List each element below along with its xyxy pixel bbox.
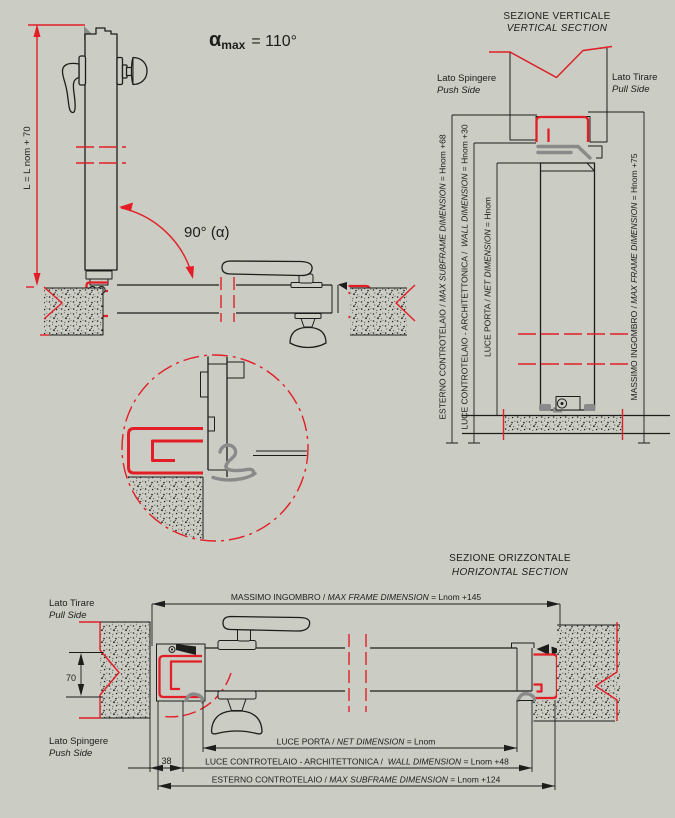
pull-side-label-en: Pull Side [612, 84, 650, 95]
vertical-section-title: SEZIONE VERTICALE [503, 11, 610, 22]
lever-handle-pull-side [62, 56, 85, 113]
opening-angle: 90° (α) [119, 203, 230, 280]
lever-handle-plan [222, 261, 322, 288]
dim-net-opening-v: LUCE PORTA / NET DIMENSION = Hnom [483, 197, 493, 357]
horizontal-section-title: SEZIONE ORIZZONTALE [449, 553, 571, 564]
wall-thickness-dimension: 70 [66, 653, 103, 698]
horizontal-section-view: SEZIONE ORIZZONTALE HORIZONTAL SECTION L… [49, 553, 620, 790]
head-gasket [538, 146, 602, 158]
pull-side-label-en: Pull Side [49, 610, 87, 621]
technical-drawing-page: L = L nom + 70 αmax= 110° [0, 0, 675, 818]
wall-hatch-right-h [534, 622, 621, 721]
dim-net-opening-h: LUCE PORTA / NET DIMENSION = Lnom [277, 737, 436, 747]
door-leaf-plan-open [117, 261, 347, 348]
hinge-jamb-h [157, 644, 232, 717]
knob-handle-plan-h [212, 691, 263, 734]
dim-max-frame-h: MASSIMO INGOMBRO / MAX FRAME DIMENSION =… [231, 592, 482, 602]
dim-wall-opening-h: LUCE CONTROTELAIO - ARCHITETTONICA / WAL… [205, 757, 509, 767]
wall-break-notch [489, 47, 612, 78]
alpha-max-label: αmax= 110° [209, 29, 297, 52]
head-subframe-profile [537, 117, 589, 142]
dim-subframe-outer-h: ESTERNO CONTROTELAIO / MAX SUBFRAME DIME… [212, 775, 501, 785]
horizontal-section-subtitle: HORIZONTAL SECTION [452, 567, 569, 578]
wall-hatch-head [489, 47, 612, 143]
floor-section [462, 409, 670, 440]
dim-wall-opening-v: LUCE CONTROTELAIO - ARCHITETTONICA / WAL… [460, 124, 470, 429]
lock-jamb-h [518, 644, 562, 702]
push-side-label: Lato Spingere [49, 736, 108, 747]
knob-handle-plan [290, 314, 326, 348]
height-dim-label: L = L nom + 70 [22, 126, 33, 189]
vertical-section-view: SEZIONE VERTICALE VERTICAL SECTION Lato … [437, 11, 670, 443]
dim-subframe-outer-v: ESTERNO CONTROTELAIO / MAX SUBFRAME DIME… [438, 134, 448, 420]
gasket-detail [213, 474, 255, 480]
max-frame-dimension-h: MASSIMO INGOMBRO / MAX FRAME DIMENSION =… [152, 592, 560, 646]
lever-handle-plan-h [218, 617, 310, 650]
profile-detail-callout [117, 352, 312, 547]
subframe-offset-label: 38 [161, 756, 171, 766]
push-side-label-en: Push Side [437, 85, 480, 96]
pull-side-label: Lato Tirare [612, 72, 657, 83]
subframe-profile-detail [129, 429, 204, 474]
door-leaf-elevation [62, 26, 147, 270]
dim-max-frame-v: MASSIMO INGOMBRO / MAX FRAME DIMENSION =… [629, 153, 639, 400]
angle-label: 90° (α) [184, 224, 230, 241]
push-side-label: Lato Spingere [437, 73, 496, 84]
pull-side-label: Lato Tirare [49, 598, 94, 609]
vertical-section-subtitle: VERTICAL SECTION [507, 23, 608, 34]
gasket-detail [220, 445, 254, 475]
knob-handle-push-side [117, 58, 147, 85]
break-line [349, 634, 366, 712]
wall-hatch-left-h [79, 622, 150, 718]
door-leaf-plan-h [205, 617, 534, 734]
wall-thickness-label: 70 [66, 673, 76, 683]
door-leaf-section [518, 163, 628, 413]
door-open-plan-view: L = L nom + 70 αmax= 110° [22, 24, 415, 348]
wall-hatch-lock-side [350, 285, 415, 335]
door-subframe-technical-drawing: L = L nom + 70 αmax= 110° [0, 0, 675, 818]
push-side-label-en: Push Side [49, 748, 92, 759]
detail-circle-outline [122, 355, 308, 541]
wall-hatch-hinge-side [40, 287, 103, 335]
